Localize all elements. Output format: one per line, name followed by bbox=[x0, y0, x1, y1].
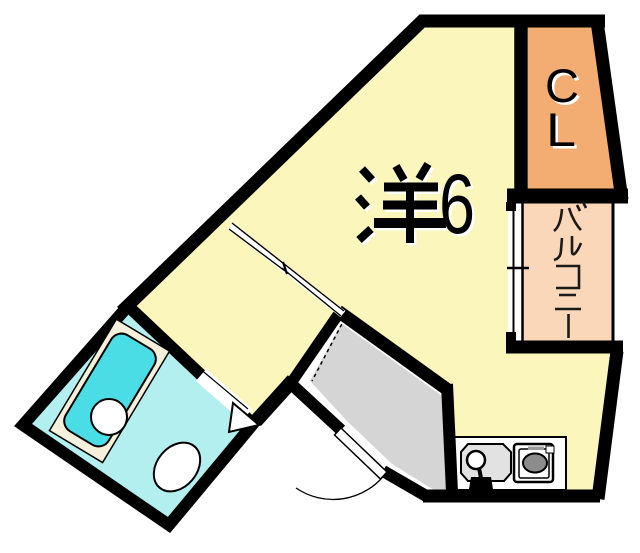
svg-text:6: 6 bbox=[439, 157, 475, 251]
svg-text:L: L bbox=[546, 103, 576, 156]
